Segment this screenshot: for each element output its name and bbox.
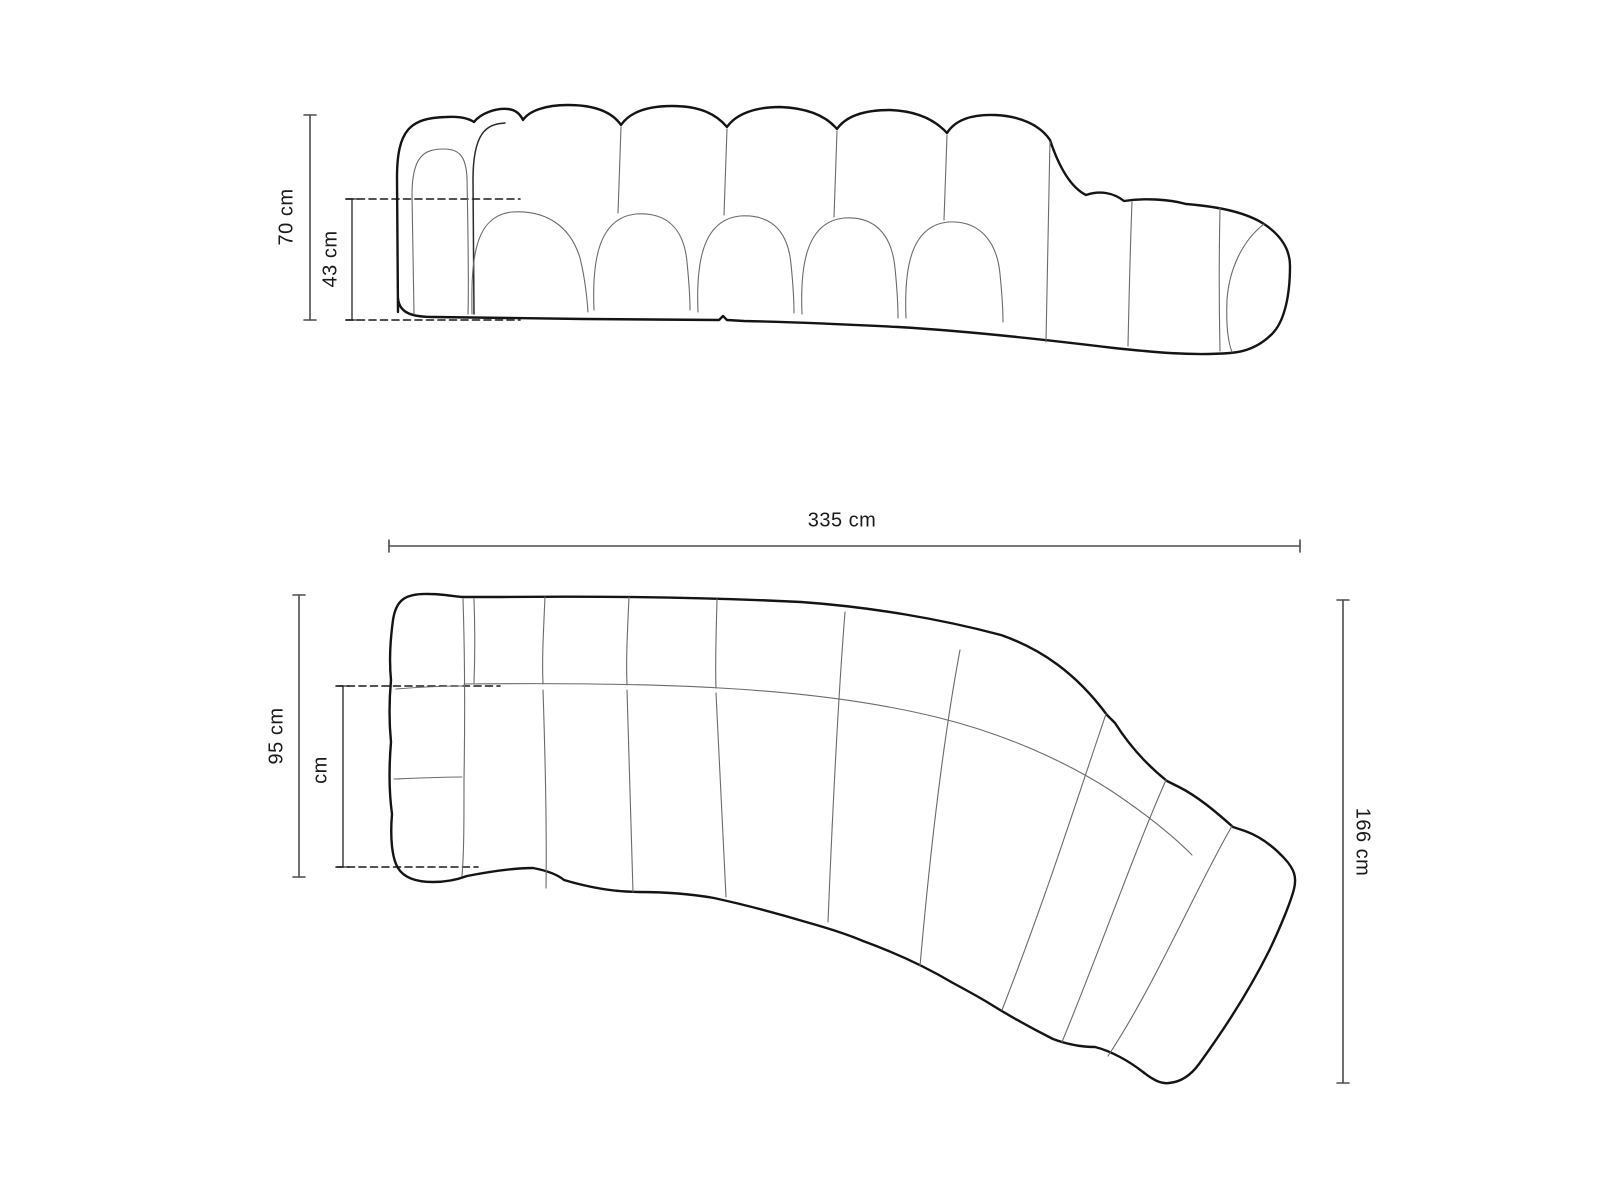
technical-drawing-page: 70 cm 43 cm 335 cm 95 cm cm 166 cm <box>0 0 1600 1200</box>
dimension-line-seat-depth <box>337 686 349 867</box>
label-chaise-depth: 166 cm <box>1351 808 1374 877</box>
dimension-line-seat-height <box>346 199 358 320</box>
side-sofa-outline <box>397 105 1290 354</box>
sofa-technical-drawing <box>0 0 1600 1200</box>
side-elevation-view <box>304 105 1290 354</box>
label-total-depth: 95 cm <box>266 708 289 765</box>
side-arm-back-seam <box>473 123 505 314</box>
label-total-width: 335 cm <box>808 510 877 533</box>
plan-arm-seams <box>394 599 465 876</box>
plan-sofa-outline <box>390 594 1296 1083</box>
plan-fan-seams <box>828 612 1232 1056</box>
side-chaise-seams <box>1128 202 1264 352</box>
dimension-line-total-height <box>304 115 316 320</box>
dimension-line-total-depth <box>293 595 305 877</box>
side-arm-inner-seam <box>412 149 468 314</box>
dimension-line-chaise-depth <box>1337 600 1349 1083</box>
label-seat-height: 43 cm <box>320 231 343 288</box>
top-plan-view <box>293 540 1349 1083</box>
side-seat-cushion-seams <box>472 212 1003 322</box>
plan-straight-seams <box>474 597 726 897</box>
side-backrest-seams <box>618 127 1050 342</box>
dimension-line-total-width <box>389 540 1300 552</box>
plan-backrest-curve <box>464 684 1192 855</box>
label-seat-depth: cm <box>310 756 333 784</box>
dashed-extension-lines-plan <box>336 686 500 867</box>
dashed-extension-lines-side <box>346 199 520 320</box>
label-total-height: 70 cm <box>276 189 299 246</box>
